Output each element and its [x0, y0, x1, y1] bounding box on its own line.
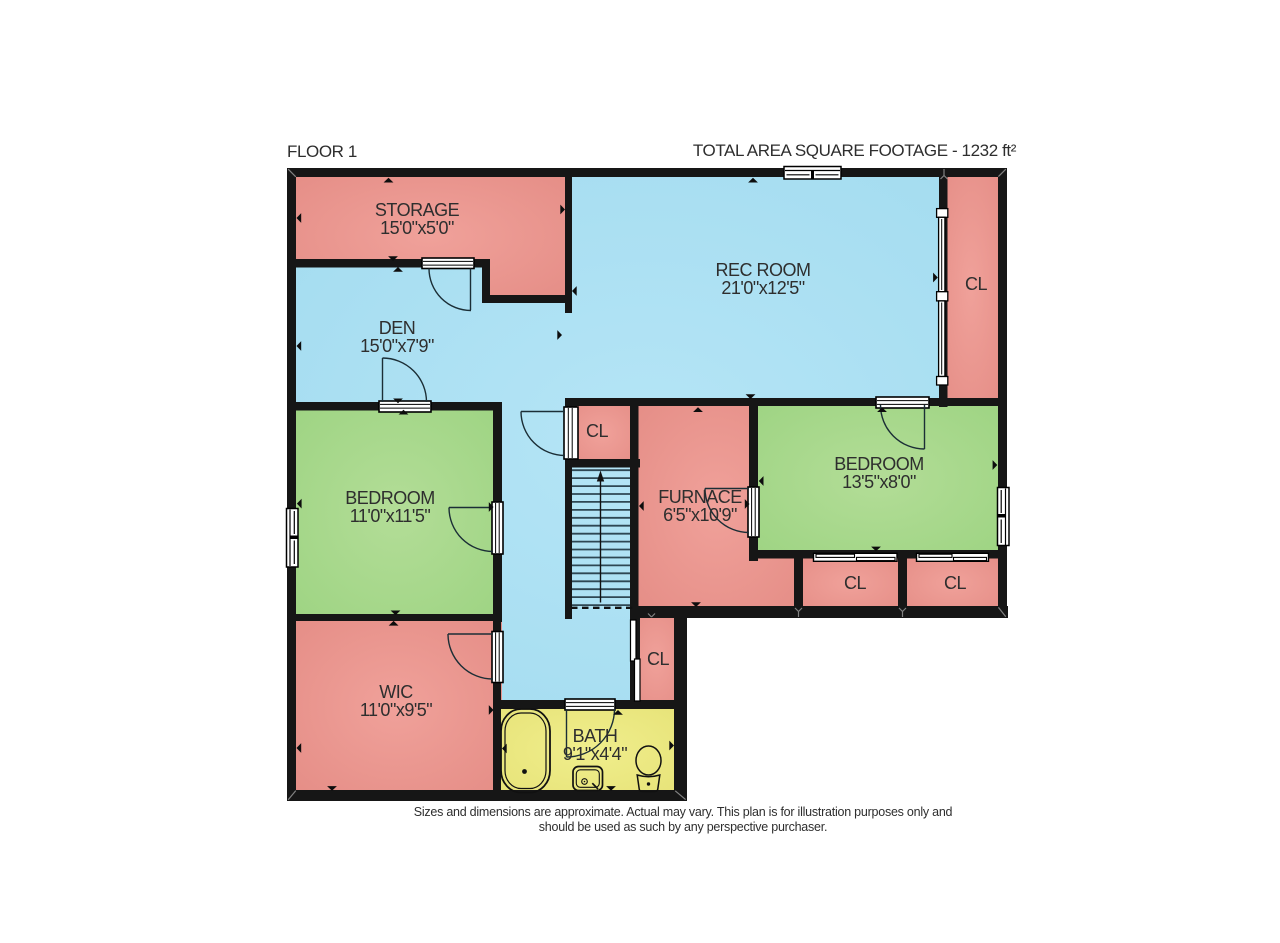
- svg-text:REC ROOM: REC ROOM: [716, 260, 811, 280]
- svg-text:9'1"x4'4": 9'1"x4'4": [563, 744, 627, 764]
- svg-text:CL: CL: [586, 421, 608, 441]
- svg-text:15'0"x7'9": 15'0"x7'9": [360, 336, 434, 356]
- svg-text:Sizes and dimensions are appro: Sizes and dimensions are approximate. Ac…: [414, 805, 953, 819]
- svg-text:STORAGE: STORAGE: [375, 200, 460, 220]
- svg-text:FLOOR 1: FLOOR 1: [287, 142, 357, 161]
- svg-text:should be used as such by any: should be used as such by any perspectiv…: [539, 820, 827, 834]
- svg-text:CL: CL: [647, 649, 669, 669]
- svg-text:WIC: WIC: [379, 682, 413, 702]
- svg-text:15'0"x5'0": 15'0"x5'0": [380, 218, 454, 238]
- svg-text:13'5"x8'0": 13'5"x8'0": [842, 472, 916, 492]
- svg-text:TOTAL AREA SQUARE FOOTAGE - 12: TOTAL AREA SQUARE FOOTAGE - 1232 ft²: [693, 141, 1017, 160]
- svg-text:CL: CL: [965, 274, 987, 294]
- svg-text:BATH: BATH: [573, 726, 618, 746]
- svg-text:21'0"x12'5": 21'0"x12'5": [721, 278, 804, 298]
- svg-text:6'5"x10'9": 6'5"x10'9": [663, 505, 737, 525]
- svg-text:BEDROOM: BEDROOM: [834, 454, 924, 474]
- svg-text:CL: CL: [944, 573, 966, 593]
- svg-text:11'0"x9'5": 11'0"x9'5": [360, 700, 432, 720]
- svg-text:11'0"x11'5": 11'0"x11'5": [350, 506, 431, 526]
- svg-text:BEDROOM: BEDROOM: [345, 488, 435, 508]
- svg-text:CL: CL: [844, 573, 866, 593]
- svg-text:DEN: DEN: [379, 318, 416, 338]
- svg-text:FURNACE: FURNACE: [658, 487, 742, 507]
